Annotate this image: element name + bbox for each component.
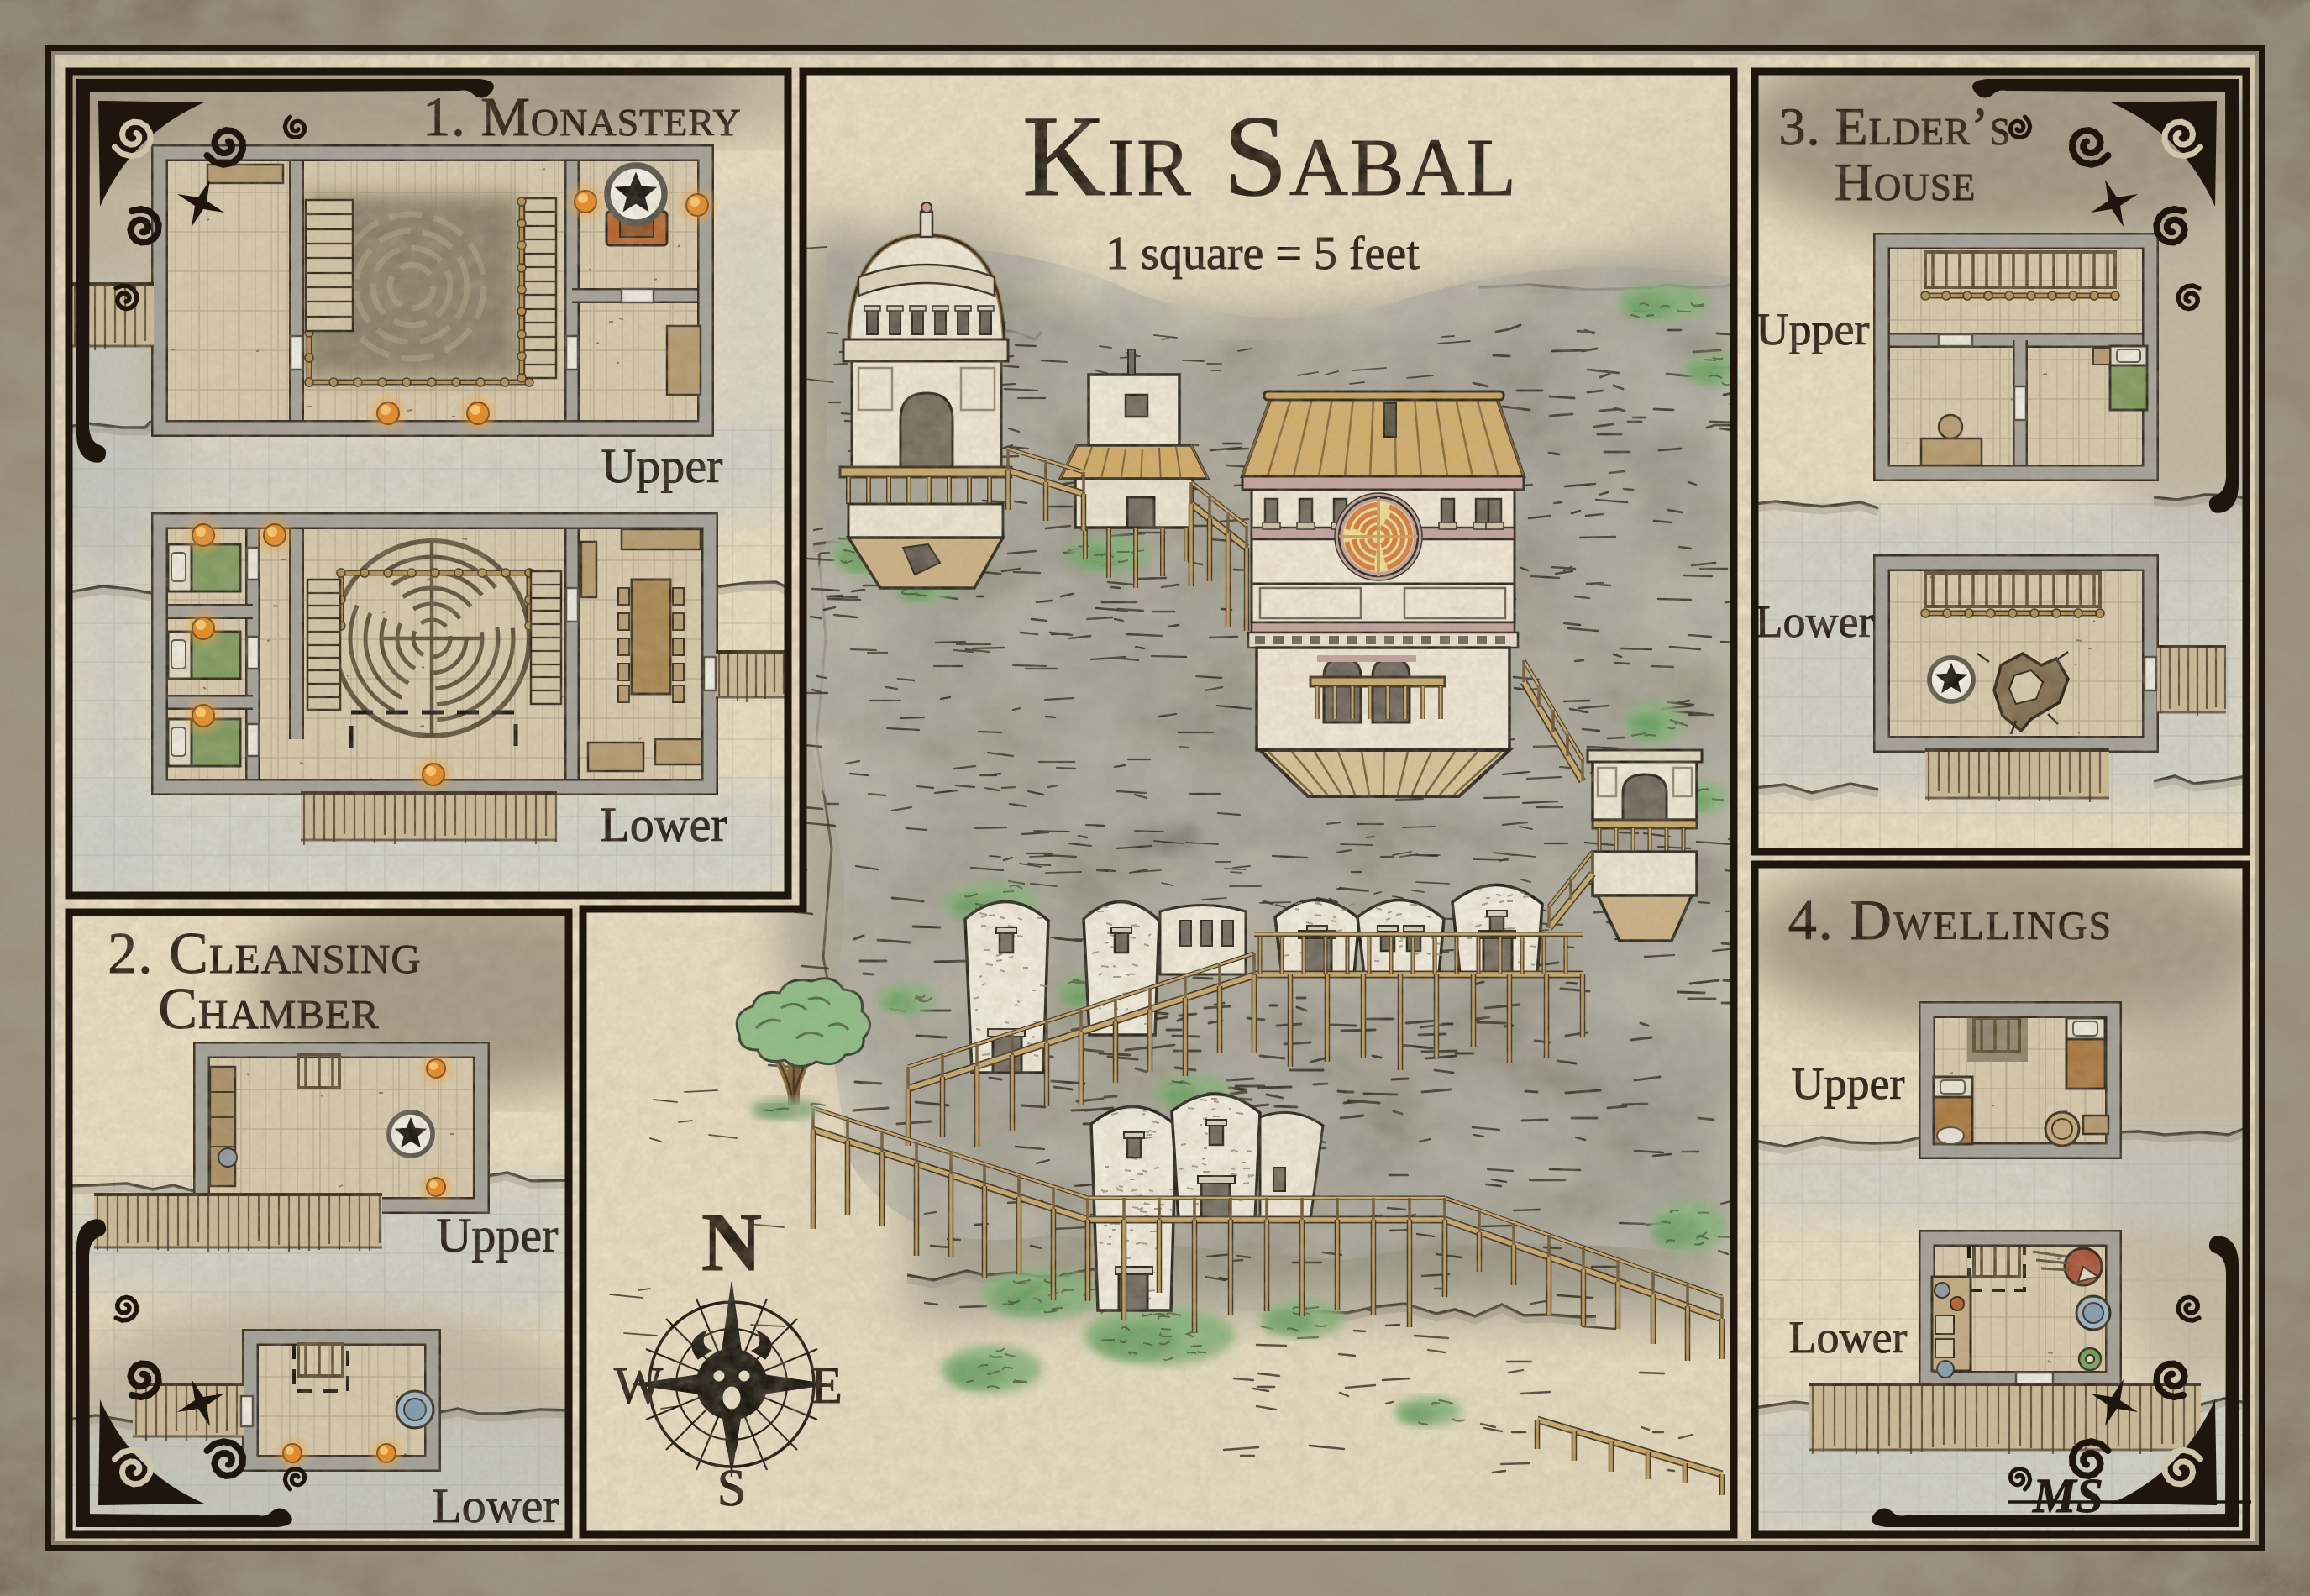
svg-text:MS: MS: [2032, 1468, 2103, 1523]
